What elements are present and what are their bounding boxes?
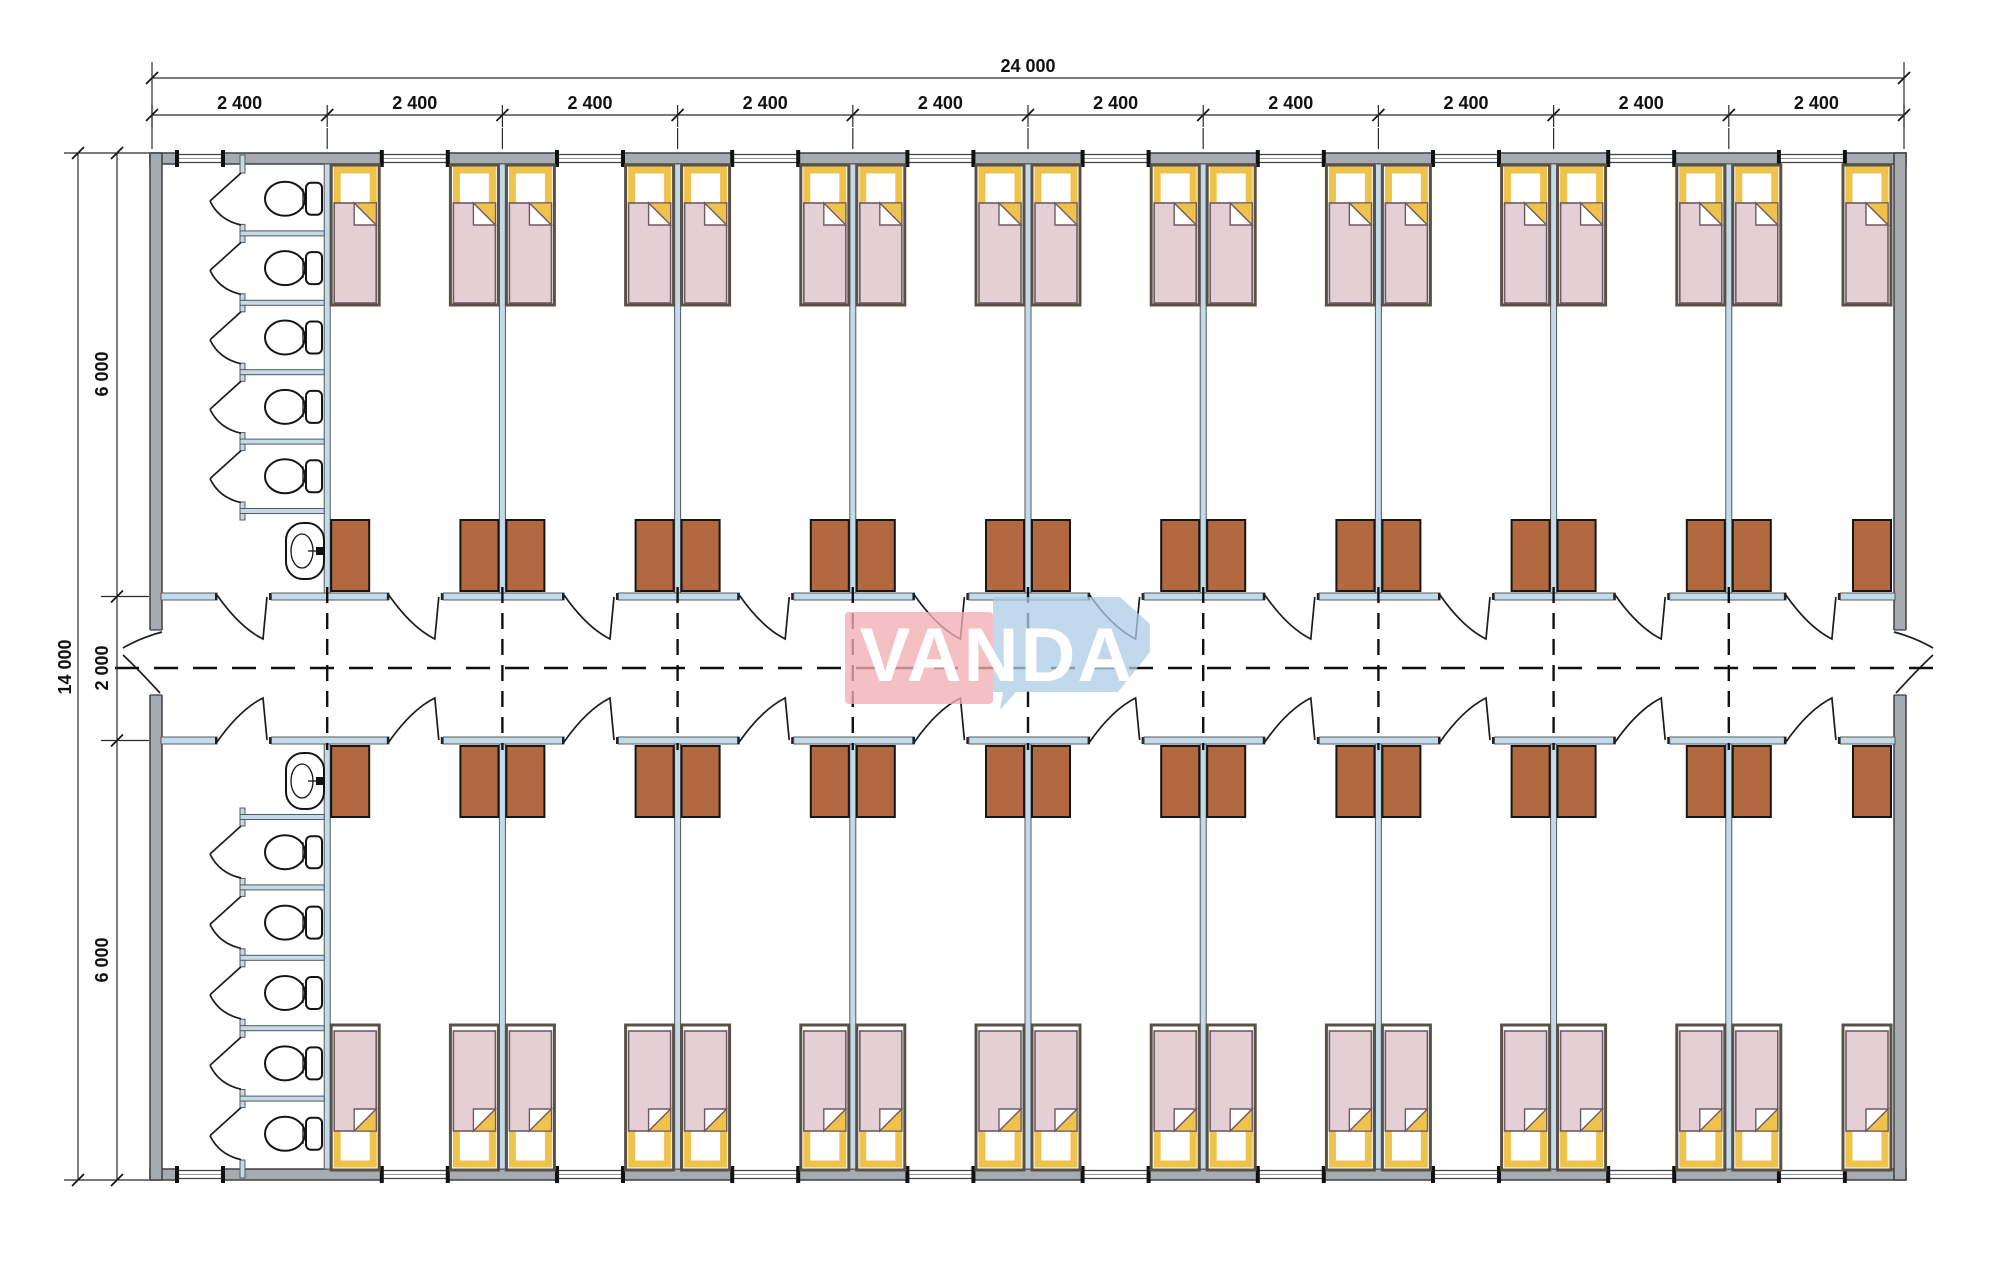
wardrobe: [1733, 746, 1771, 817]
door-swing: [914, 698, 964, 742]
bed: [1733, 1025, 1781, 1170]
dim-bay: 2 400: [743, 93, 788, 113]
window: [1777, 150, 1847, 167]
bed: [976, 165, 1024, 305]
wardrobe: [331, 520, 369, 591]
wardrobe: [331, 746, 369, 817]
wardrobe: [506, 746, 544, 817]
bed: [857, 165, 905, 305]
bed: [1502, 165, 1550, 305]
bed: [506, 165, 554, 305]
wardrobe: [1687, 746, 1725, 817]
watermark-text: VANDA: [860, 613, 1135, 698]
bed: [1382, 1025, 1430, 1170]
wardrobe: [986, 746, 1024, 817]
wardrobe: [1382, 520, 1420, 591]
dim-bay: 2 400: [1619, 93, 1664, 113]
bed: [1032, 1025, 1080, 1170]
wardrobe: [460, 520, 498, 591]
window: [380, 150, 450, 167]
wardrobe: [1558, 746, 1596, 817]
dim-bay: 2 400: [1794, 93, 1839, 113]
bed: [1382, 165, 1430, 305]
bed: [1558, 165, 1606, 305]
bed: [1326, 1025, 1374, 1170]
bed: [331, 165, 379, 305]
wardrobe: [636, 746, 674, 817]
door-swing: [739, 595, 789, 639]
corridor-exit-right: [1893, 630, 1933, 695]
window: [730, 150, 800, 167]
wardrobe: [857, 746, 895, 817]
wardrobe: [636, 520, 674, 591]
wardrobe: [682, 746, 720, 817]
bed: [1677, 1025, 1725, 1170]
door-swing: [564, 698, 614, 742]
door-swing: [217, 698, 267, 742]
door-swing: [1615, 595, 1665, 639]
bed: [801, 1025, 849, 1170]
wardrobe: [1207, 746, 1245, 817]
wardrobe: [1032, 520, 1070, 591]
wardrobe: [1336, 746, 1374, 817]
bed: [801, 165, 849, 305]
toilet-block-top: [210, 155, 325, 579]
dim-bay: 2 400: [1268, 93, 1313, 113]
wardrobe: [1382, 746, 1420, 817]
window: [1431, 1166, 1501, 1183]
window: [1606, 150, 1676, 167]
dim-top-total: 24 000: [1000, 56, 1055, 76]
wardrobe: [506, 520, 544, 591]
door-swing: [739, 698, 789, 742]
bed: [1558, 1025, 1606, 1170]
wardrobe: [1161, 746, 1199, 817]
floor-plan-canvas: 24 0002 4002 4002 4002 4002 4002 4002 40…: [0, 0, 2000, 1285]
dim-bay: 2 400: [918, 93, 963, 113]
wardrobe: [1336, 520, 1374, 591]
window: [1081, 150, 1151, 167]
bed: [1151, 1025, 1199, 1170]
wardrobe: [857, 520, 895, 591]
window-bottom-toilet-bay: [175, 1166, 225, 1183]
door-swing: [1265, 595, 1315, 639]
floor-plan: 24 0002 4002 4002 4002 4002 4002 4002 40…: [0, 0, 2000, 1285]
bed: [626, 165, 674, 305]
window: [1256, 150, 1326, 167]
corridor-wall-bottom: [161, 737, 1895, 744]
wardrobe: [1207, 520, 1245, 591]
bed: [1677, 165, 1725, 305]
bed: [506, 1025, 554, 1170]
bed: [626, 1025, 674, 1170]
window: [555, 150, 625, 167]
wardrobe: [1853, 746, 1891, 817]
door-swing: [1440, 595, 1490, 639]
wardrobe: [1687, 520, 1725, 591]
toilet-block-bottom: [210, 753, 325, 1178]
window: [905, 1166, 975, 1183]
bed: [1207, 165, 1255, 305]
wardrobe: [811, 520, 849, 591]
wardrobe: [1512, 746, 1550, 817]
vanda-watermark: VANDA: [845, 597, 1150, 710]
bed: [1843, 1025, 1891, 1170]
window: [1081, 1166, 1151, 1183]
window: [1777, 1166, 1847, 1183]
bed: [331, 1025, 379, 1170]
door-swing: [564, 595, 614, 639]
door-swing: [1786, 698, 1836, 742]
bed: [976, 1025, 1024, 1170]
dim-left-segment: 2 000: [92, 645, 112, 690]
wardrobe: [1032, 746, 1070, 817]
door-swing: [217, 595, 267, 639]
dim-bay: 2 400: [392, 93, 437, 113]
window: [555, 1166, 625, 1183]
wardrobe: [1853, 520, 1891, 591]
door-swing: [1265, 698, 1315, 742]
bed: [682, 1025, 730, 1170]
wardrobe: [460, 746, 498, 817]
door-swing: [1440, 698, 1490, 742]
door-swing: [1090, 698, 1140, 742]
door-swing: [389, 698, 439, 742]
bed: [857, 1025, 905, 1170]
dim-bay: 2 400: [1443, 93, 1488, 113]
bed: [1733, 165, 1781, 305]
bed: [450, 165, 498, 305]
bed: [1502, 1025, 1550, 1170]
dim-bay: 2 400: [217, 93, 262, 113]
wardrobe: [682, 520, 720, 591]
dim-left-total: 14 000: [55, 639, 75, 694]
door-swing: [389, 595, 439, 639]
window: [1606, 1166, 1676, 1183]
dim-bay: 2 400: [1093, 93, 1138, 113]
window: [730, 1166, 800, 1183]
dim-left-segment: 6 000: [92, 351, 112, 396]
wardrobe: [1733, 520, 1771, 591]
bed: [450, 1025, 498, 1170]
bed: [1207, 1025, 1255, 1170]
window: [1256, 1166, 1326, 1183]
corridor-exit-left: [123, 630, 163, 695]
dim-bay: 2 400: [567, 93, 612, 113]
wardrobe: [1512, 520, 1550, 591]
dim-left-segment: 6 000: [92, 937, 112, 982]
door-swing: [1615, 698, 1665, 742]
wardrobe: [1558, 520, 1596, 591]
bed: [1151, 165, 1199, 305]
wardrobe: [1161, 520, 1199, 591]
bed: [682, 165, 730, 305]
window: [905, 150, 975, 167]
bed: [1326, 165, 1374, 305]
window: [380, 1166, 450, 1183]
window: [1431, 150, 1501, 167]
door-swing: [1786, 595, 1836, 639]
wardrobe: [986, 520, 1024, 591]
plan-svg: 24 0002 4002 4002 4002 4002 4002 4002 40…: [0, 0, 2000, 1285]
bed: [1843, 165, 1891, 305]
bed: [1032, 165, 1080, 305]
wardrobe: [811, 746, 849, 817]
window-top-toilet-bay: [175, 150, 225, 167]
